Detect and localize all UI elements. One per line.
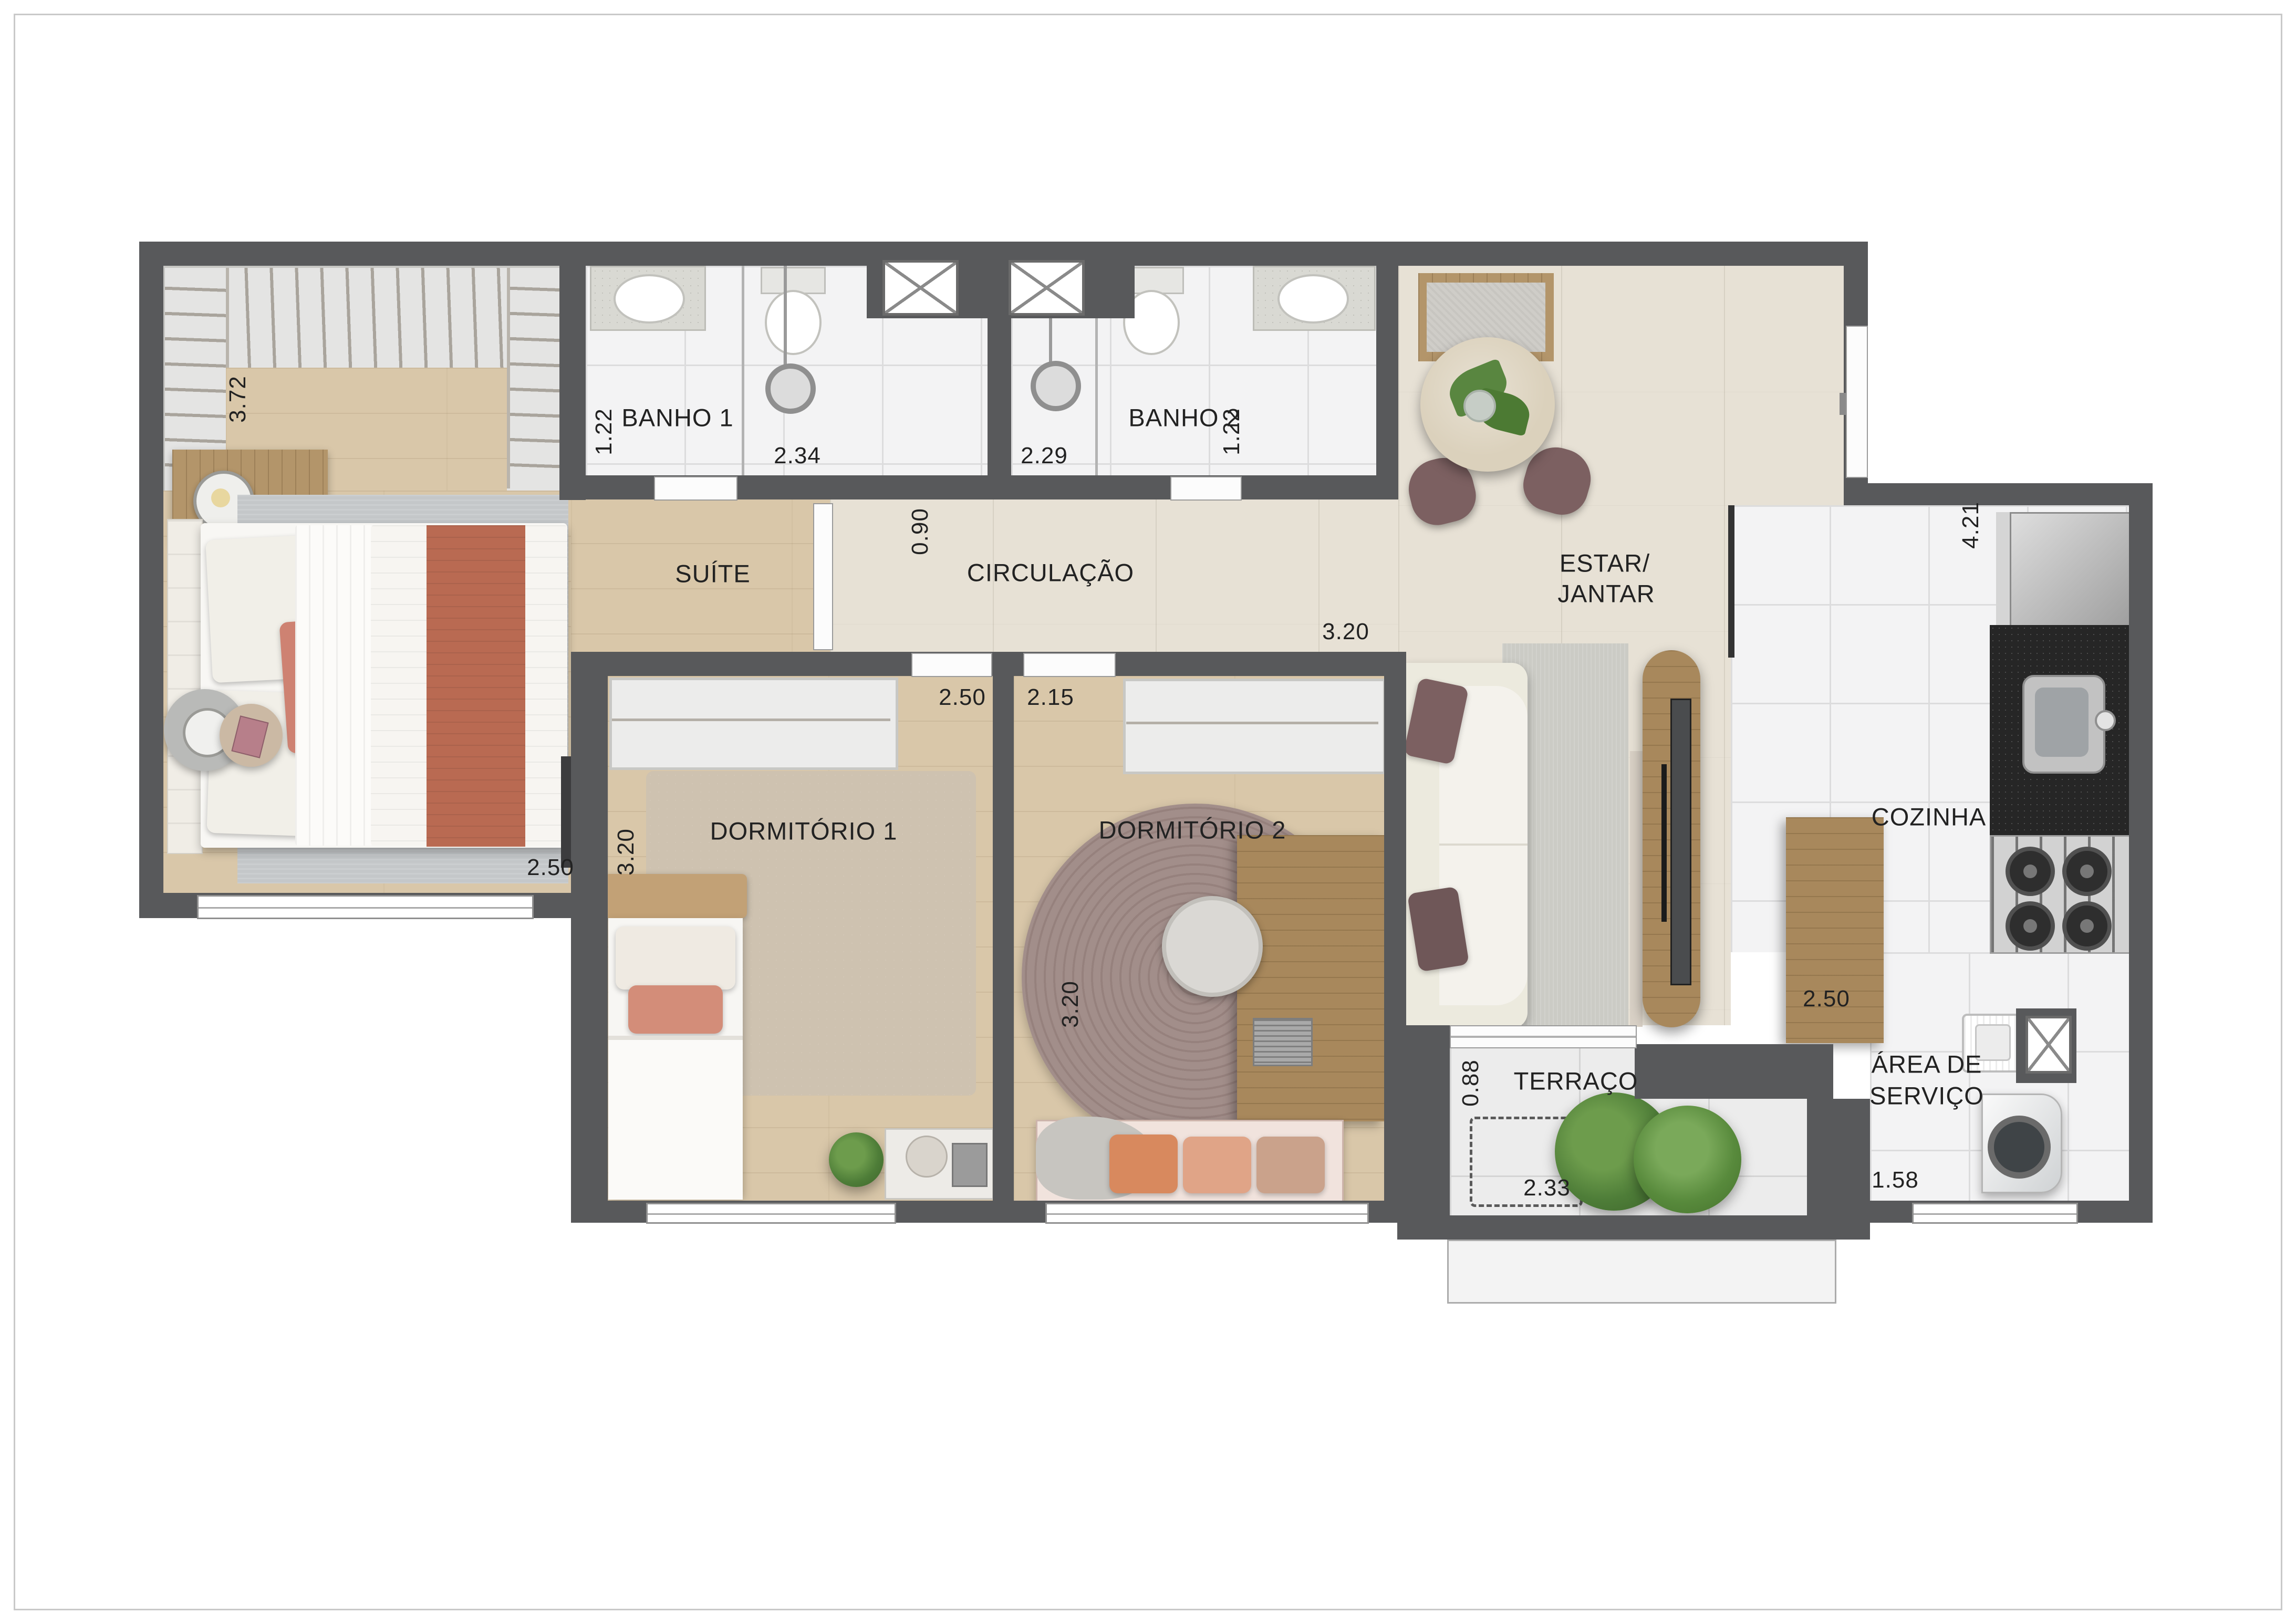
stove-burner-2 — [2062, 847, 2112, 896]
dim-cozinha-length: 4.21 — [1958, 502, 1984, 549]
dorm1-pillow-accent — [628, 985, 723, 1034]
room-label-terraco: TERRAÇO — [1514, 1067, 1638, 1096]
suite-throw-terracotta — [427, 525, 525, 847]
dorm1-laptop — [952, 1143, 988, 1187]
dorm2-pillow-3 — [1256, 1137, 1325, 1193]
wall-between-dorms — [993, 675, 1014, 1201]
tv-panel-stone-strip — [1630, 751, 1643, 1027]
kitchen-sink-bowl — [2035, 688, 2089, 757]
wall-kitchen-right — [2129, 483, 2153, 1223]
wall-kitchen-top — [1844, 483, 2153, 505]
dim-terraco-length: 2.33 — [1523, 1175, 1571, 1201]
dorm1-door — [911, 653, 992, 677]
terrace-slab-below — [1447, 1240, 1836, 1304]
room-label-circulacao: CIRCULAÇÃO — [967, 558, 1134, 587]
dim-circulacao-width: 0.90 — [907, 508, 933, 555]
kitchen-faucet — [2095, 710, 2116, 731]
dorm2-window — [1045, 1203, 1369, 1224]
room-label-estar-line1: ESTAR/ — [1560, 549, 1650, 578]
dorm2-pillow-2 — [1183, 1137, 1251, 1193]
dorm2-wardrobe — [1123, 679, 1384, 774]
dorm2-chair — [1162, 896, 1263, 997]
suite-tv — [561, 756, 572, 868]
tv-screen — [1670, 699, 1691, 985]
shaft-vent-2 — [1009, 260, 1085, 316]
dim-estar-cabinet: 2.50 — [1803, 986, 1850, 1012]
wall-left-exterior — [139, 242, 163, 918]
banho1-shower-arm — [784, 266, 787, 366]
dim-dorm1-width: 2.50 — [939, 684, 986, 711]
suite-window — [197, 895, 534, 919]
dim-dorm1-length: 3.20 — [613, 828, 639, 876]
floor-plan-canvas: 3.72 SUÍTE 2.50 1.22 BANHO 1 2.34 2.29 B… — [0, 0, 2296, 1624]
dorm1-pillow — [616, 926, 735, 990]
suite-lamp-bulb — [211, 488, 230, 507]
wall-terraco-as-divider — [1807, 1099, 1870, 1240]
room-label-area-servico-line1: ÁREA DE — [1872, 1050, 1982, 1079]
dorm2-laptop — [1253, 1018, 1313, 1066]
washer-door — [1988, 1116, 2051, 1179]
banho1-toilet-bowl — [765, 290, 822, 355]
dorm1-plant — [829, 1132, 884, 1187]
room-label-banho1: BANHO 1 — [621, 403, 733, 432]
dim-terraco-depth: 0.88 — [1458, 1059, 1484, 1107]
terrace-sliding-door — [1450, 1025, 1637, 1048]
wall-dorm1-left — [571, 652, 608, 1223]
banho2-sink-basin — [1277, 274, 1349, 324]
wall-banho-divider — [988, 315, 1011, 476]
dorm2-desk — [1237, 835, 1384, 1121]
wall-suite-banho1 — [559, 242, 586, 500]
sofa-seat-split — [1439, 844, 1528, 846]
banho2-door — [1170, 476, 1242, 501]
banho1-shower-glass — [742, 266, 744, 476]
room-label-cozinha: COZINHA — [1872, 803, 1987, 831]
entry-door — [1846, 326, 1868, 478]
kitchen-counter-edge — [1728, 505, 1734, 658]
dim-dorm2-length: 3.20 — [1057, 981, 1084, 1028]
suite-sheet-fold — [295, 525, 373, 846]
room-label-estar-line2: JANTAR — [1557, 579, 1655, 608]
fridge-door-line — [1996, 512, 2011, 625]
closet-hangers-top — [226, 268, 507, 371]
banho1-shower-head — [765, 363, 816, 414]
dorm1-tray — [906, 1136, 948, 1178]
dim-area-servico-width: 1.58 — [1872, 1167, 1919, 1193]
dim-banho2-depth: 1.22 — [1219, 408, 1245, 455]
wall-terraco-notch — [1635, 1044, 1833, 1099]
banho2-shower-head — [1031, 361, 1081, 411]
dim-circulacao-length: 3.20 — [1322, 619, 1369, 645]
banho1-door — [654, 476, 737, 501]
tv-soundbar — [1661, 764, 1667, 922]
wall-circulacao-dorms — [586, 652, 1406, 676]
room-label-area-servico-line2: SERVIÇO — [1869, 1081, 1984, 1110]
wall-terraco-bottom — [1397, 1215, 1870, 1240]
dorm1-duvet — [608, 1036, 743, 1200]
dim-suite-closet: 3.72 — [225, 376, 251, 423]
room-label-suite: SUÍTE — [675, 559, 750, 588]
dim-banho2-length: 2.29 — [1021, 443, 1068, 469]
room-floor-dormitorio2 — [1014, 675, 1384, 1201]
shaft-vent-1 — [882, 260, 959, 316]
dorm2-pillow-1 — [1109, 1134, 1178, 1193]
stove-burner-3 — [2006, 901, 2055, 951]
dim-suite-width: 2.50 — [527, 855, 574, 881]
room-label-dormitorio1: DORMITÓRIO 1 — [710, 817, 898, 846]
terrace-plant-2 — [1634, 1106, 1741, 1213]
shaft-vent-window — [2025, 1016, 2072, 1074]
suite-bed-headboard — [167, 519, 203, 854]
dorm1-wardrobe-rail — [612, 719, 890, 721]
dim-banho1-depth: 1.22 — [591, 408, 617, 455]
fridge — [1996, 512, 2131, 628]
wall-terraco-left — [1397, 1025, 1450, 1237]
dorm1-wardrobe — [609, 678, 898, 770]
dorm1-window — [646, 1203, 896, 1224]
entry-door-handle — [1840, 393, 1846, 415]
as-window — [1912, 1203, 2078, 1224]
dorm2-wardrobe-rail — [1126, 722, 1378, 724]
dim-dorm2-width: 2.15 — [1027, 684, 1074, 711]
stove-burner-1 — [2006, 847, 2055, 896]
dorm1-bed-headboard — [604, 874, 747, 918]
dining-vase — [1463, 390, 1496, 422]
dorm2-door — [1023, 653, 1116, 677]
suite-corridor-door — [813, 503, 833, 650]
stove-burner-4 — [2062, 901, 2112, 951]
room-label-dormitorio2: DORMITÓRIO 2 — [1099, 816, 1286, 845]
wall-banho2-estar — [1376, 242, 1398, 499]
banho1-sink-basin — [614, 274, 685, 324]
dim-banho1-length: 2.34 — [774, 443, 821, 469]
